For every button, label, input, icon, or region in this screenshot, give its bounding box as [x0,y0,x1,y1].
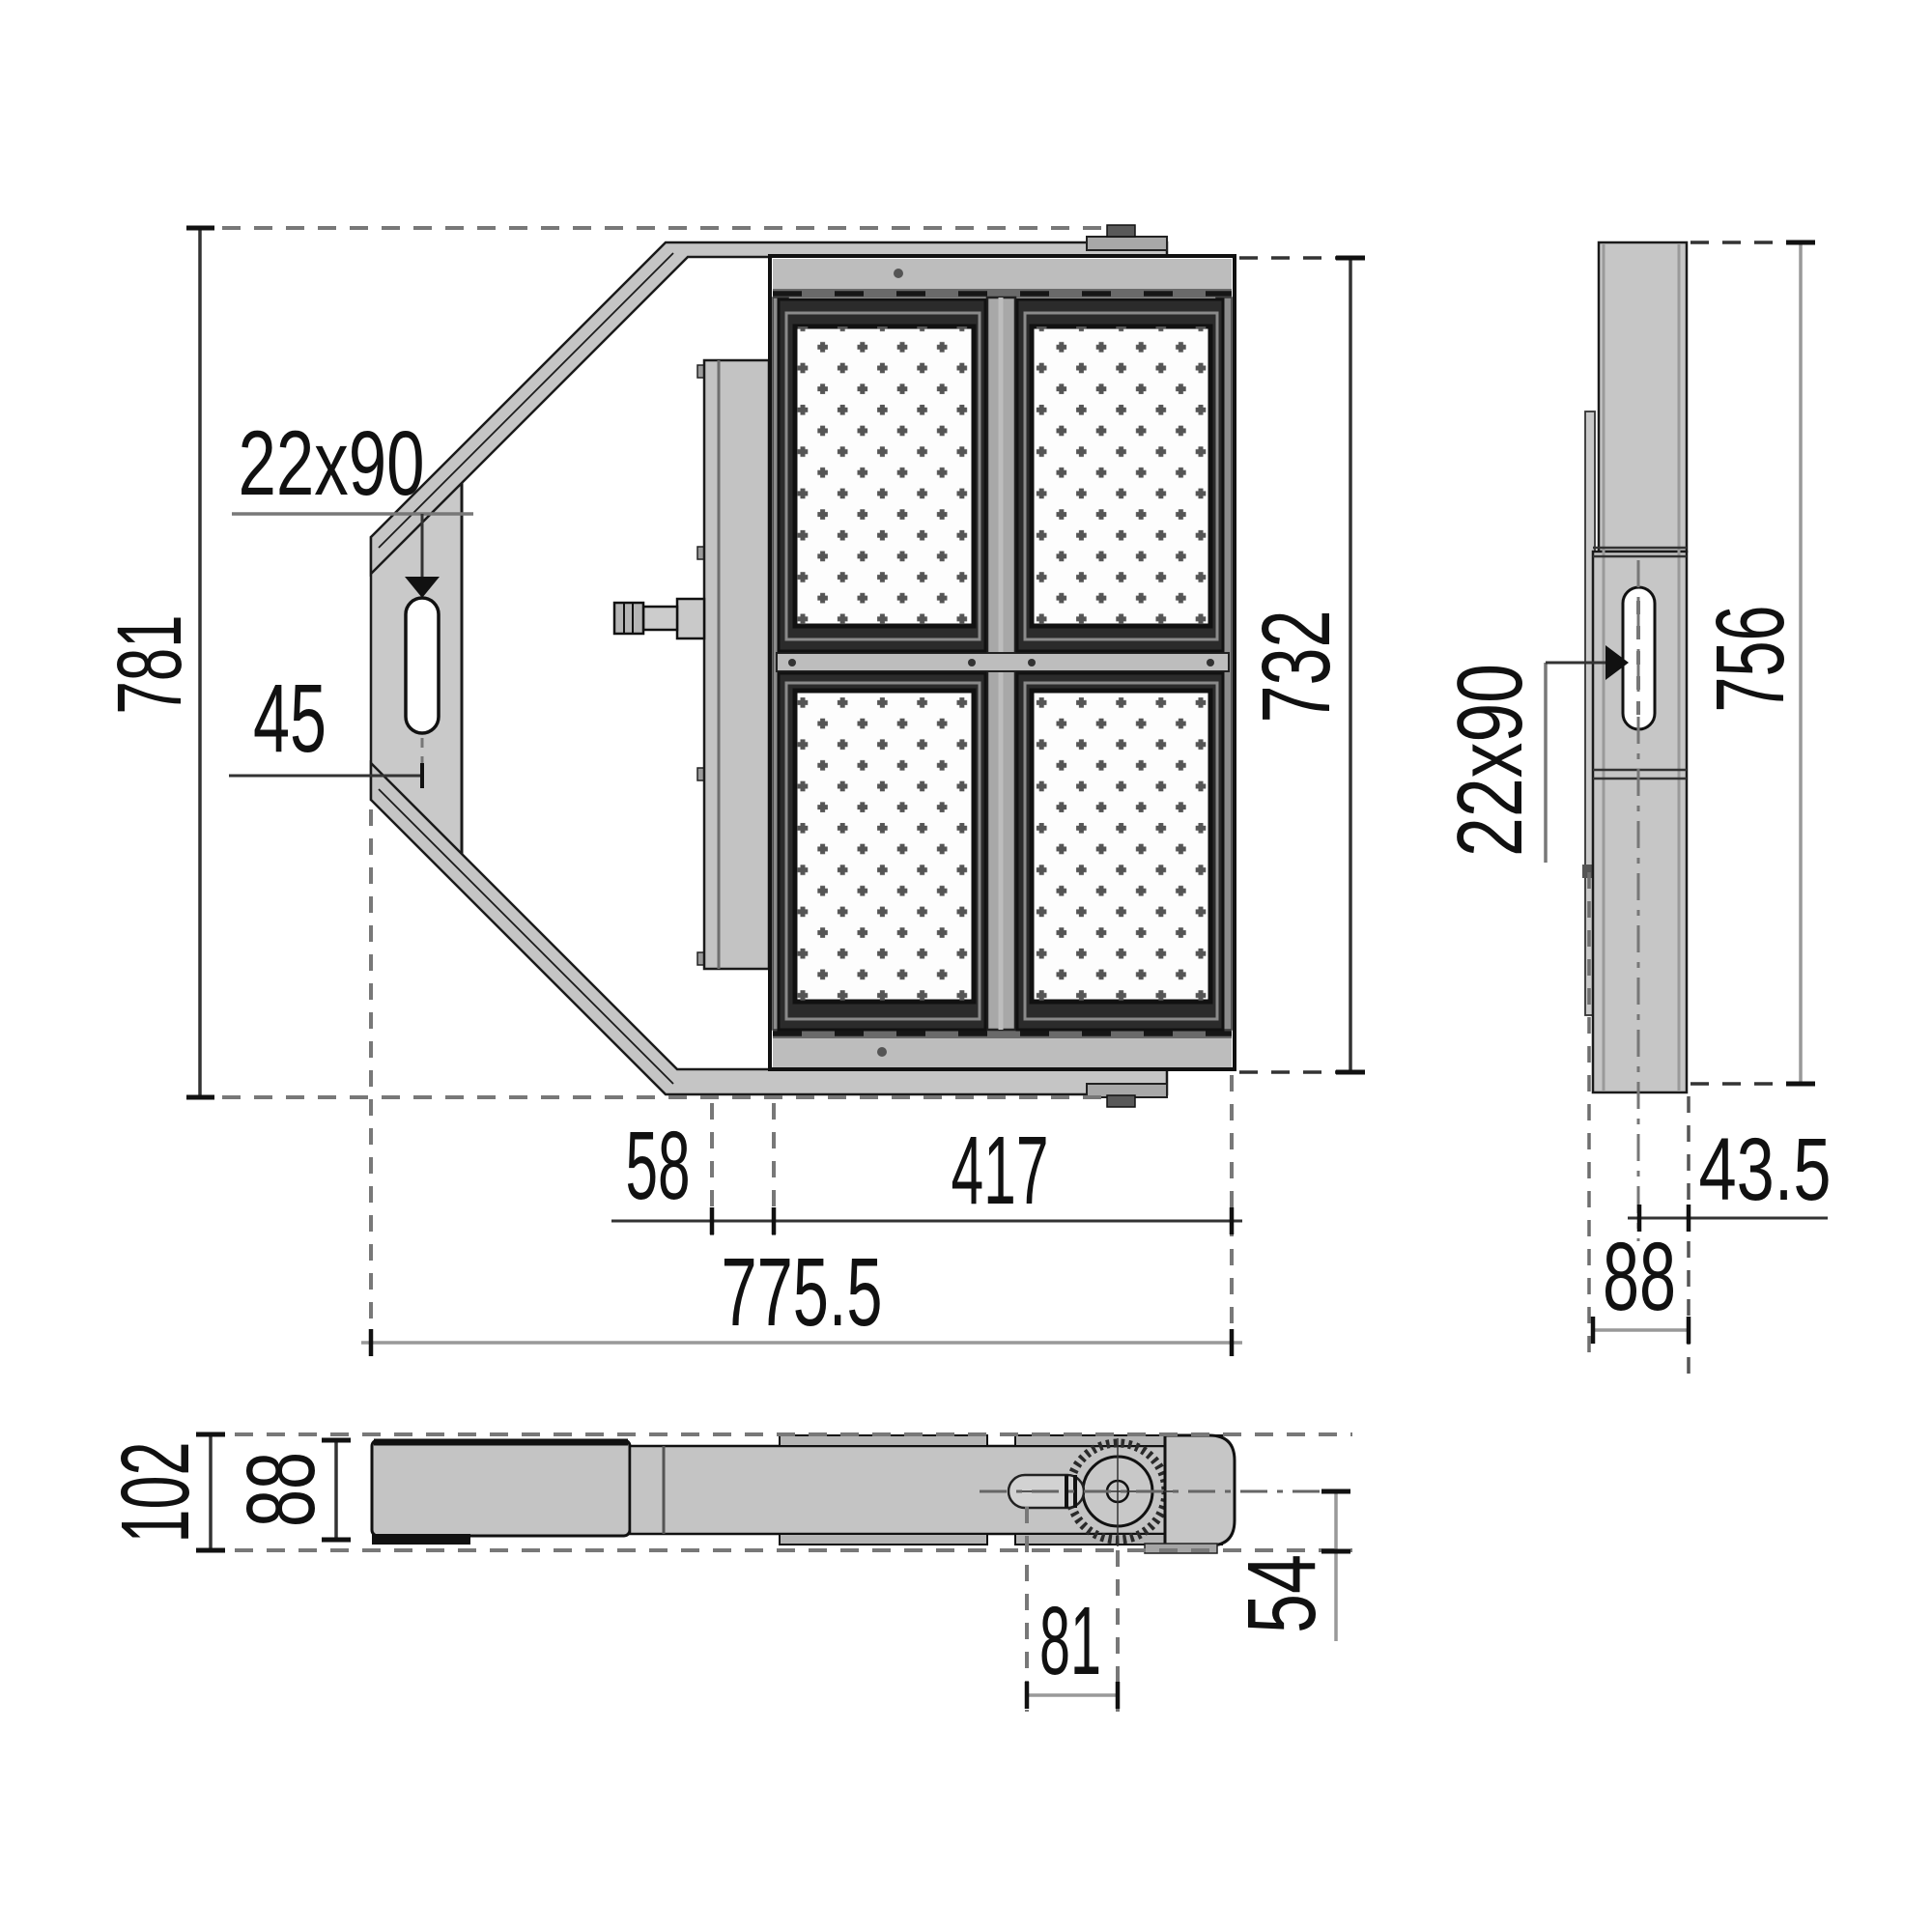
svg-text:781: 781 [99,615,201,715]
svg-text:22x90: 22x90 [1438,664,1542,857]
svg-text:88: 88 [1603,1223,1676,1331]
svg-text:45: 45 [253,665,327,773]
svg-text:54: 54 [1228,1554,1336,1633]
svg-text:732: 732 [1242,610,1350,723]
svg-text:775.5: 775.5 [722,1238,883,1347]
svg-text:22x90: 22x90 [239,412,425,515]
svg-text:417: 417 [952,1117,1049,1225]
svg-text:43.5: 43.5 [1699,1120,1832,1219]
svg-text:81: 81 [1039,1587,1101,1695]
svg-text:102: 102 [101,1442,210,1544]
svg-text:58: 58 [626,1112,691,1220]
svg-text:756: 756 [1696,606,1804,713]
svg-text:88: 88 [227,1452,335,1527]
